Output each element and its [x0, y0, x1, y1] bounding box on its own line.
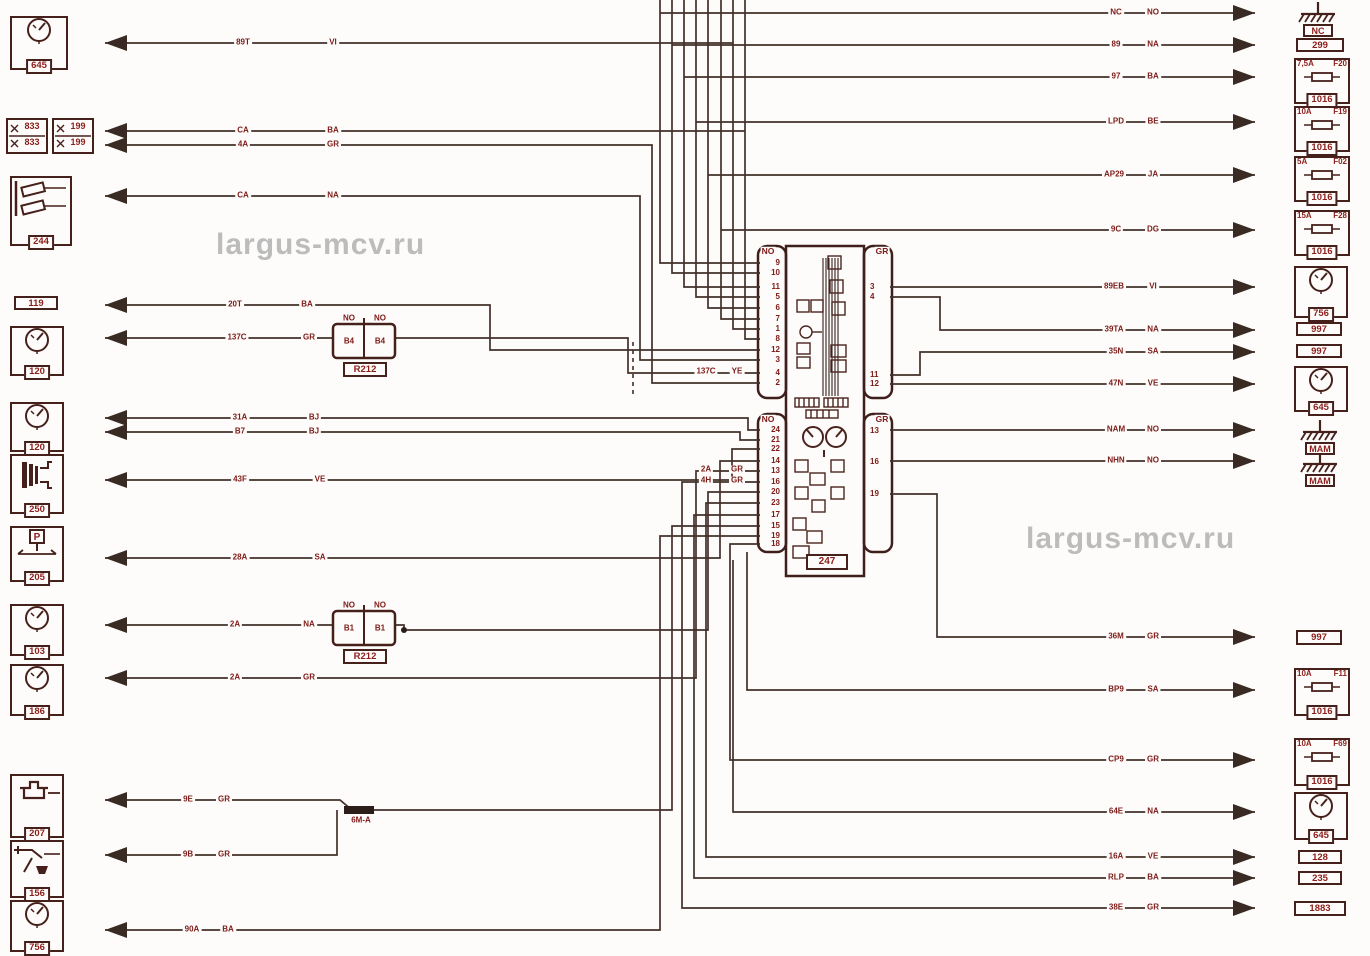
indicator-icon: [812, 500, 825, 512]
wire-color-label: NA: [325, 192, 341, 200]
fuse-element-icon: [1294, 70, 1350, 84]
component-833-grid: 833833: [6, 118, 48, 154]
ground-hatch: [1319, 464, 1324, 472]
ground-id-plate: MAM: [1305, 474, 1335, 487]
connector-pin-number: 11: [772, 283, 780, 291]
component-id-plate: 645: [1308, 401, 1334, 416]
connector-pin-number: 6: [776, 304, 780, 312]
wire-code-label: 43F: [231, 476, 249, 484]
component-id-plate: 299: [1296, 38, 1344, 52]
wire-BP9: [747, 552, 1255, 690]
wire-color-label: NO: [1145, 426, 1161, 434]
component-id-label: 833: [20, 121, 44, 132]
wire-arrowhead: [1233, 376, 1255, 392]
ground-hatch: [1299, 14, 1304, 22]
wire-89T: [733, 0, 760, 329]
component-id-plate: 756: [24, 941, 50, 956]
gauge-icon: [10, 664, 64, 700]
wire-arrowhead: [105, 123, 127, 139]
wire-color-label: VI: [1147, 283, 1159, 291]
wire-code-label: 36M: [1106, 633, 1126, 641]
indicator-icon: [793, 518, 806, 530]
wire-20T: [105, 305, 760, 350]
fuse-element-icon: [1294, 750, 1350, 764]
connector-pin-number: 3: [870, 283, 874, 291]
component-756-box: 756: [10, 900, 64, 952]
wire-color-label: GR: [1145, 904, 1161, 912]
wire-color-label: BJ: [307, 428, 321, 436]
ground-hatch: [1307, 432, 1312, 440]
wire-color-label: GR: [301, 674, 317, 682]
component-id-plate: 1883: [1294, 901, 1346, 916]
connector-pin-number: 17: [771, 511, 780, 519]
site-watermark: largus-mcv.ru: [1026, 524, 1235, 554]
fuse-rating: 10A: [1297, 740, 1312, 748]
relay-pin-label: B1: [342, 625, 356, 633]
component-id-plate: 119: [14, 296, 58, 310]
wire-arrowhead: [105, 424, 127, 440]
wire-color-label: VE: [313, 476, 328, 484]
wire-color-label: GR: [729, 466, 745, 474]
wire-2A: [105, 471, 760, 678]
wire-43F: [105, 449, 760, 480]
component-id-plate: 250: [24, 503, 50, 518]
ground-hatch: [1317, 14, 1322, 22]
connector-pin-number: 8: [776, 335, 780, 343]
wire-color-label: GR: [216, 796, 232, 804]
indicator-icon: [795, 487, 808, 499]
component-199-grid: 199199: [52, 118, 94, 154]
component-997-tag: 997: [1296, 630, 1342, 645]
connector-label-no: NO: [761, 247, 776, 256]
wire-arrowhead: [105, 188, 127, 204]
ground-hatch: [1331, 432, 1336, 440]
connector-pin-number: 24: [771, 426, 780, 434]
connector-pin-number: 7: [776, 315, 780, 323]
wire-code-label: 9B: [181, 851, 195, 859]
fuse-rating: 7,5A: [1297, 60, 1314, 68]
ground-hatch: [1319, 432, 1324, 440]
wire-arrowhead: [1233, 69, 1255, 85]
wire-arrowhead: [105, 922, 127, 938]
component-1883-tag: 1883: [1294, 901, 1346, 916]
fuse-rating-row: 10AF19: [1297, 108, 1347, 116]
wire-arrowhead: [1233, 804, 1255, 820]
indicator-icon: [810, 473, 825, 485]
component-997-tag: 997: [1296, 344, 1342, 358]
wire-9B: [105, 810, 337, 855]
ground-id-plate: MAM: [1305, 442, 1335, 455]
ground-hatch: [1313, 432, 1318, 440]
connector-pin-number: 16: [870, 458, 879, 466]
fuse-owner-plate: 1016: [1306, 705, 1337, 720]
ground-hatch: [1329, 14, 1334, 22]
speaker-icon: [10, 454, 64, 498]
connector-pin-number: 4: [776, 369, 780, 377]
site-watermark: largus-mcv.ru: [216, 230, 425, 260]
ground-hatch: [1311, 14, 1316, 22]
component-645-box: 645: [1294, 792, 1348, 840]
wiring-lines-layer: [0, 0, 1370, 956]
fuse-F69-box: 10AF69 1016: [1294, 738, 1350, 786]
relay-pin-label: NO: [341, 315, 357, 323]
connector-pin-number: 15: [771, 522, 780, 530]
component-id-plate: 645: [26, 59, 52, 74]
wire-89: [672, 0, 760, 273]
wire-4A: [105, 145, 760, 383]
wire-color-label: DG: [1145, 226, 1161, 234]
connector-pin-number: 23: [771, 499, 780, 507]
indicator-icon: [795, 460, 808, 472]
wire-code-label: 16A: [1107, 853, 1126, 861]
wire-arrowhead: [1233, 279, 1255, 295]
wire-39TA: [890, 297, 1255, 330]
relay-pin-label: NO: [341, 602, 357, 610]
wire-color-label: NA: [301, 621, 317, 629]
wire-arrowhead: [1233, 870, 1255, 886]
fuse-F19-box: 10AF19 1016: [1294, 106, 1350, 152]
fuse-element-icon: [1294, 168, 1350, 182]
wire-arrowhead: [105, 35, 127, 51]
wire-arrowhead: [105, 550, 127, 566]
connector-pin-number: 12: [771, 346, 780, 354]
wire-code-label: 47N: [1107, 380, 1126, 388]
indicator-icon: [831, 487, 844, 499]
svg-text:P: P: [34, 532, 41, 543]
wire-code-label: 20T: [226, 301, 244, 309]
wire-arrowhead: [105, 670, 127, 686]
wire-arrowhead: [1233, 322, 1255, 338]
component-997-tag: 997: [1296, 322, 1342, 336]
connector-pin-number: 11: [870, 371, 878, 379]
component-186-box: 186: [10, 664, 64, 716]
wire-arrowhead: [1233, 5, 1255, 21]
wire-arrowhead: [1233, 682, 1255, 698]
ground-hatch: [1331, 464, 1336, 472]
wire-code-label: NC: [1108, 9, 1124, 17]
wire-90A: [105, 536, 760, 930]
wire-color-label: BA: [220, 926, 236, 934]
wire-color-label: GR: [301, 334, 317, 342]
wire-arrowhead: [1233, 453, 1255, 469]
fuse-number: F02: [1333, 158, 1347, 166]
indicator-icon: [797, 343, 810, 354]
wire-arrowhead: [105, 792, 127, 808]
connector-pin-number: 1: [776, 325, 780, 333]
fuse-owner-plate: 1016: [1306, 775, 1337, 790]
lcd-display-icon: [795, 398, 848, 418]
wire-code-label: 2A: [228, 674, 242, 682]
relay-pin-label: B4: [342, 338, 356, 346]
wire-code-label: 39TA: [1103, 326, 1126, 334]
fuse-owner-plate: 1016: [1306, 141, 1337, 156]
ground-hatch: [1323, 14, 1328, 22]
connector-label-no: NO: [761, 415, 776, 424]
wire-code-label: AP29: [1102, 171, 1126, 179]
ground-hatch: [1305, 14, 1310, 22]
wire-code-label: 64E: [1107, 808, 1125, 816]
component-235-tag: 235: [1298, 871, 1342, 885]
fuse-number: F69: [1333, 740, 1347, 748]
wire-color-label: BE: [1145, 118, 1160, 126]
indicator-icon: [831, 460, 844, 472]
component-id-label: 199: [66, 121, 90, 132]
wire-color-label: BA: [1145, 73, 1161, 81]
component-244-box: 244: [10, 176, 72, 246]
wire-arrowhead: [105, 410, 127, 426]
fuse-rating-row: 10AF11: [1297, 670, 1347, 678]
fuse-owner-plate: 1016: [1306, 191, 1337, 206]
ground-hatch: [1301, 464, 1306, 472]
wire-31A: [105, 418, 760, 430]
gauge-icon: [1294, 366, 1348, 396]
fuse-F11-box: 10AF11 1016: [1294, 668, 1350, 716]
wire-code-label: 31A: [231, 414, 250, 422]
component-id-plate: 244: [28, 235, 54, 250]
wire-code-label: 28A: [231, 554, 250, 562]
unit-id-plate: 247: [806, 554, 848, 570]
component-120-box: 120: [10, 326, 64, 376]
wire-code-label: LPD: [1106, 118, 1126, 126]
wire-code-label: NAM: [1105, 426, 1127, 434]
wire-color-label: VE: [1146, 380, 1161, 388]
wire-code-label: 89: [1110, 41, 1123, 49]
connector-pin-number: 5: [776, 293, 780, 301]
component-id-plate: 205: [24, 571, 50, 586]
wire-code-label: 38E: [1107, 904, 1125, 912]
ground-hatch: [1325, 464, 1330, 472]
wire-code-label: B7: [233, 428, 247, 436]
wire-RLP: [694, 515, 1255, 878]
wire-color-label: YE: [730, 368, 745, 376]
indicator-icon: [807, 531, 822, 543]
connector-pin-number: 10: [771, 269, 780, 277]
connector-pin-number: 14: [771, 457, 780, 465]
component-756-box: 756: [1294, 266, 1348, 318]
fuse-rating-row: 10AF69: [1297, 740, 1347, 748]
wire-code-label: 97: [1110, 73, 1123, 81]
fuse-F20-box: 7,5AF20 1016: [1294, 58, 1350, 104]
wire-color-label: BJ: [307, 414, 321, 422]
wire-arrowhead: [1233, 900, 1255, 916]
wire-arrowhead: [105, 330, 127, 346]
wire-arrowhead: [105, 137, 127, 153]
wire-AP29: [708, 0, 760, 308]
connector-pin-number: 9: [776, 259, 780, 267]
fuse-number: F11: [1334, 670, 1347, 678]
wire-color-label: NO: [1145, 9, 1161, 17]
wire-code-label: 137C: [694, 368, 717, 376]
fuse-F28-box: 15AF28 1016: [1294, 210, 1350, 256]
fuse-rating: 15A: [1297, 212, 1312, 220]
wire-64E: [733, 560, 1255, 812]
component-299-tag: 299: [1296, 38, 1344, 52]
component-645-box: 645: [10, 16, 68, 70]
component-id-plate: 997: [1296, 344, 1342, 358]
relay-id-plate: R212: [343, 362, 387, 377]
cluster-body: [786, 246, 864, 576]
indicator-icon: [811, 300, 823, 312]
wire-color-label: BA: [299, 301, 315, 309]
wire-color-label: NO: [1145, 457, 1161, 465]
ground-hatch: [1301, 432, 1306, 440]
fuse-rating-row: 15AF28: [1297, 212, 1347, 220]
wire-code-label: 9E: [181, 796, 195, 804]
component-id-plate: 997: [1296, 322, 1342, 336]
connector-pin-number: 13: [870, 427, 879, 435]
connector-pin-number: 2: [776, 379, 780, 387]
fuse-element-icon: [1294, 118, 1350, 132]
wire-color-label: GR: [1145, 756, 1161, 764]
relay-pin-label: NO: [372, 315, 388, 323]
junction-dot: [401, 627, 407, 633]
fuse-number: F28: [1333, 212, 1347, 220]
connector-label-gr: GR: [875, 247, 890, 256]
wire-arrowhead: [105, 617, 127, 633]
wire-arrowhead: [1233, 37, 1255, 53]
gauge-dial-icon: [803, 427, 846, 457]
gauge-icon: [1294, 792, 1348, 824]
fuel-icon: [10, 840, 64, 882]
splice-bar: [344, 806, 374, 814]
connector-pin-number: 18: [771, 540, 780, 548]
wire-36M: [890, 494, 1255, 637]
fuse-rating-row: 5AF02: [1297, 158, 1347, 166]
wire-color-label: NA: [1145, 326, 1161, 334]
component-205-box: P 205: [10, 526, 64, 582]
wiring-diagram-page: 89TVICABA4AGRCANA20TBA137CGR31ABJB7BJ43F…: [0, 0, 1370, 956]
wire-color-label: VE: [1146, 853, 1161, 861]
wire-color-label: SA: [1145, 686, 1160, 694]
wire-9E: [105, 526, 760, 810]
fuse-owner-plate: 1016: [1306, 245, 1337, 260]
wiring-ribbon: [823, 258, 838, 396]
wire-color-label: NA: [1145, 808, 1161, 816]
connector-pin-number: 20: [771, 488, 780, 496]
wire-color-label: JA: [1146, 171, 1160, 179]
wire-code-label: 90A: [183, 926, 202, 934]
wire-arrowhead: [1233, 752, 1255, 768]
fuse-rating: 10A: [1297, 108, 1312, 116]
wire-color-label: BA: [1145, 874, 1161, 882]
wire-35N: [890, 352, 1255, 375]
wire-color-label: VI: [327, 39, 339, 47]
lever-icon: [10, 774, 64, 822]
component-id-plate: 120: [24, 365, 50, 380]
wire-code-label: 4A: [236, 141, 250, 149]
bulb-icon: [800, 326, 812, 338]
wire-9C: [721, 0, 760, 319]
connector-pin-number: 3: [776, 356, 780, 364]
gauge-icon: [10, 604, 64, 640]
wire-color-label: GR: [216, 851, 232, 859]
wire-color-label: SA: [1145, 348, 1160, 356]
wire-color-label: GR: [729, 477, 745, 485]
wire-code-label: 137C: [225, 334, 248, 342]
fuse-rating: 10A: [1297, 670, 1312, 678]
wire-code-label: 2A: [228, 621, 242, 629]
gauge-icon: [10, 402, 64, 436]
wire-color-label: GR: [325, 141, 341, 149]
relay-id-plate: R212: [343, 649, 387, 664]
wire-arrowhead: [1233, 167, 1255, 183]
component-207-box: 207: [10, 774, 64, 838]
fuse-element-icon: [1294, 222, 1350, 236]
wire-code-label: 4H: [699, 477, 713, 485]
fuse-number: F19: [1333, 108, 1347, 116]
connector-pin-number: 13: [771, 467, 780, 475]
wire-code-label: 2A: [699, 466, 713, 474]
wire-code-label: CP9: [1106, 756, 1126, 764]
fuse-number: F20: [1333, 60, 1347, 68]
fuse-element-icon: [1294, 680, 1350, 694]
cluster-internals: [793, 256, 848, 566]
component-119-tag: 119: [14, 296, 58, 310]
component-id-plate: 235: [1298, 871, 1342, 885]
relay-pin-label: B4: [373, 338, 387, 346]
component-id-label: 833: [20, 137, 44, 148]
wire-16A: [706, 503, 1255, 857]
wire-arrowhead: [1233, 849, 1255, 865]
component-id-label: 199: [66, 137, 90, 148]
wire-B7: [105, 432, 760, 440]
ground-hatch: [1313, 464, 1318, 472]
wire-28A: [105, 461, 760, 558]
wire-code-label: CA: [235, 192, 251, 200]
relay-pin-label: B1: [373, 625, 387, 633]
component-id-plate: 645: [1308, 829, 1334, 844]
wire-arrowhead: [105, 472, 127, 488]
wire-color-label: BA: [325, 127, 341, 135]
wire-code-label: 9C: [1109, 226, 1123, 234]
connector-pin-number: 16: [771, 478, 780, 486]
fuse-rating: 5A: [1297, 158, 1307, 166]
component-120-box: 120: [10, 402, 64, 452]
wire-code-label: 89T: [234, 39, 252, 47]
fuse-rating-row: 7,5AF20: [1297, 60, 1347, 68]
gauge-icon: [1294, 266, 1348, 302]
component-id-plate: 128: [1298, 850, 1342, 864]
wire-code-label: RLP: [1106, 874, 1126, 882]
connector-pin-number: 22: [771, 445, 780, 453]
wire-arrowhead: [1233, 422, 1255, 438]
connector-pin-number: 12: [870, 380, 879, 388]
component-id-plate: 186: [24, 705, 50, 720]
component-128-tag: 128: [1298, 850, 1342, 864]
component-id-plate: 997: [1296, 630, 1342, 645]
wire-color-label: NA: [1145, 41, 1161, 49]
component-250-box: 250: [10, 454, 64, 514]
connector-pin-number: 4: [870, 293, 874, 301]
ground-hatch: [1325, 432, 1330, 440]
resistor-icon: [10, 176, 72, 230]
wire-code-label: BP9: [1106, 686, 1126, 694]
gauge-icon: [10, 900, 64, 936]
component-156-box: 156: [10, 840, 64, 898]
wire-arrowhead: [1233, 344, 1255, 360]
connector-label-gr: GR: [875, 415, 890, 424]
component-103-box: 103: [10, 604, 64, 656]
wire-code-label: NHN: [1105, 457, 1126, 465]
indicator-icon: [797, 300, 809, 312]
splice-id-label: 6M-A: [349, 817, 373, 825]
wire-arrowhead: [1233, 222, 1255, 238]
component-645-box: 645: [1294, 366, 1348, 412]
relay-pin-label: NO: [372, 602, 388, 610]
fuse-F02-box: 5AF02 1016: [1294, 156, 1350, 202]
wire-code-label: 35N: [1107, 348, 1126, 356]
wire-arrowhead: [1233, 629, 1255, 645]
